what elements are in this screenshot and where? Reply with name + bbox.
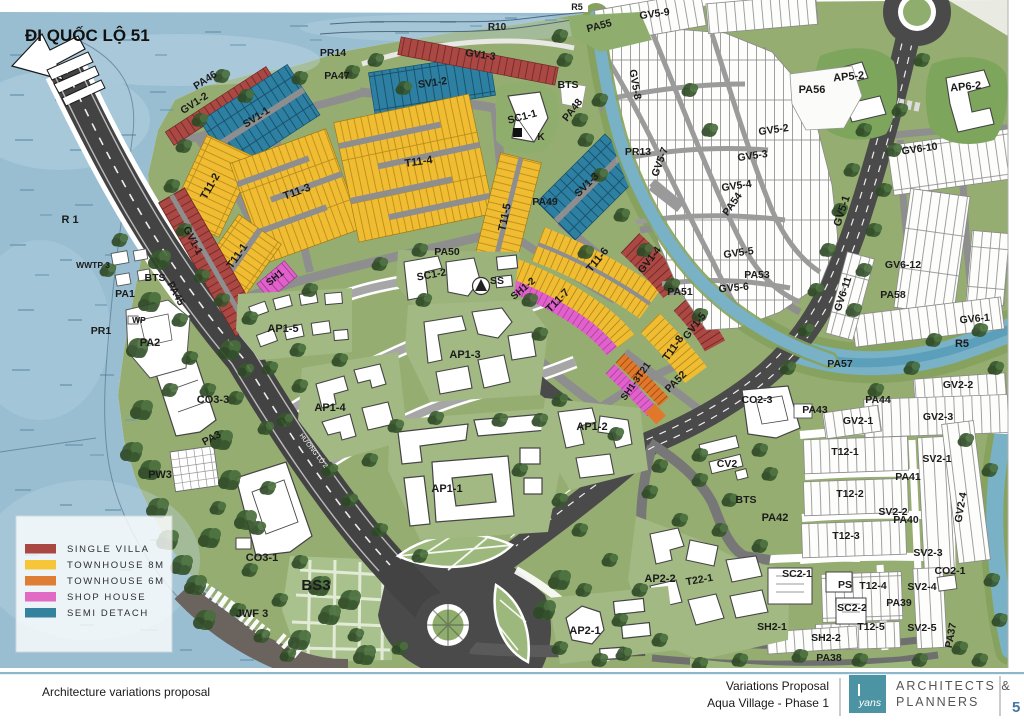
svg-text:PR1: PR1 bbox=[91, 325, 112, 337]
svg-text:GV2-3: GV2-3 bbox=[923, 411, 954, 423]
svg-text:T12-4: T12-4 bbox=[859, 580, 887, 592]
svg-text:PA53: PA53 bbox=[744, 269, 770, 281]
svg-text:BS3: BS3 bbox=[301, 577, 330, 594]
svg-text:PR14: PR14 bbox=[320, 47, 346, 59]
svg-text:R5: R5 bbox=[571, 2, 583, 12]
svg-text:JWF 3: JWF 3 bbox=[236, 608, 268, 620]
svg-text:BTS: BTS bbox=[736, 494, 757, 506]
svg-text:R10: R10 bbox=[488, 22, 507, 33]
svg-text:PR13: PR13 bbox=[625, 146, 651, 158]
svg-text:PW3: PW3 bbox=[148, 469, 172, 481]
svg-text:PLANNERS: PLANNERS bbox=[896, 695, 979, 709]
svg-text:T12-1: T12-1 bbox=[831, 446, 859, 458]
svg-text:R5: R5 bbox=[955, 338, 969, 350]
svg-text:AP2-2: AP2-2 bbox=[644, 573, 675, 585]
svg-text:PS: PS bbox=[838, 579, 852, 591]
svg-text:5: 5 bbox=[1012, 699, 1020, 716]
svg-text:K: K bbox=[537, 132, 545, 143]
svg-text:PA40: PA40 bbox=[893, 514, 919, 526]
svg-text:CO3-3: CO3-3 bbox=[197, 394, 229, 406]
svg-text:SV2-1: SV2-1 bbox=[922, 453, 951, 465]
svg-text:ĐI QUỐC LỘ 51: ĐI QUỐC LỘ 51 bbox=[25, 25, 150, 45]
svg-text:AP1-4: AP1-4 bbox=[314, 402, 346, 414]
svg-text:SV2-5: SV2-5 bbox=[907, 622, 936, 634]
svg-text:BTS: BTS bbox=[145, 272, 166, 284]
svg-text:AP1-1: AP1-1 bbox=[431, 483, 462, 495]
svg-text:SV2-3: SV2-3 bbox=[913, 547, 942, 559]
svg-text:AP1-2: AP1-2 bbox=[576, 421, 607, 433]
svg-text:CO2-1: CO2-1 bbox=[935, 565, 966, 577]
svg-text:GV2-2: GV2-2 bbox=[943, 379, 974, 391]
svg-text:SC2-1: SC2-1 bbox=[782, 568, 812, 580]
svg-text:TOWNHOUSE 6M: TOWNHOUSE 6M bbox=[67, 576, 165, 587]
svg-text:CO3-1: CO3-1 bbox=[246, 552, 278, 564]
svg-text:PA42: PA42 bbox=[762, 512, 789, 524]
svg-text:T12-5: T12-5 bbox=[857, 621, 885, 633]
svg-text:SHOP HOUSE: SHOP HOUSE bbox=[67, 592, 146, 603]
svg-text:ARCHITECTS &: ARCHITECTS & bbox=[896, 679, 1012, 693]
svg-text:PA1: PA1 bbox=[115, 288, 135, 300]
svg-text:AP1-5: AP1-5 bbox=[267, 323, 298, 335]
svg-text:AP2-1: AP2-1 bbox=[569, 625, 600, 637]
svg-text:SS: SS bbox=[490, 275, 504, 287]
svg-text:CV2: CV2 bbox=[717, 458, 738, 470]
svg-text:PA44: PA44 bbox=[865, 394, 891, 406]
svg-text:PA43: PA43 bbox=[802, 404, 828, 416]
svg-text:PA38: PA38 bbox=[816, 652, 842, 664]
svg-text:WP: WP bbox=[132, 315, 146, 325]
svg-text:T12-3: T12-3 bbox=[832, 530, 860, 542]
svg-text:GV6-12: GV6-12 bbox=[885, 259, 921, 271]
svg-text:SINGLE VILLA: SINGLE VILLA bbox=[67, 544, 150, 555]
svg-text:PA49: PA49 bbox=[532, 196, 558, 208]
svg-text:AP1-3: AP1-3 bbox=[449, 349, 480, 361]
svg-text:PA50: PA50 bbox=[434, 246, 460, 258]
svg-text:TOWNHOUSE 8M: TOWNHOUSE 8M bbox=[67, 560, 165, 571]
svg-text:PA58: PA58 bbox=[880, 289, 906, 301]
svg-text:PA51: PA51 bbox=[667, 286, 693, 298]
svg-text:PA56: PA56 bbox=[799, 84, 826, 96]
svg-text:SH2-1: SH2-1 bbox=[757, 621, 787, 633]
svg-text:T12-2: T12-2 bbox=[836, 488, 864, 500]
svg-text:BTS: BTS bbox=[558, 79, 579, 91]
svg-text:Architecture variations propos: Architecture variations proposal bbox=[42, 685, 210, 699]
svg-text:Variations Proposal: Variations Proposal bbox=[726, 679, 829, 693]
svg-text:GV2-1: GV2-1 bbox=[843, 415, 874, 427]
svg-text:Aqua Village - Phase 1: Aqua Village - Phase 1 bbox=[707, 696, 829, 710]
svg-text:PA57: PA57 bbox=[827, 358, 853, 370]
svg-text:PA41: PA41 bbox=[895, 471, 921, 483]
svg-text:CO2-3: CO2-3 bbox=[742, 394, 773, 406]
svg-text:PA39: PA39 bbox=[886, 597, 912, 609]
svg-text:SV2-4: SV2-4 bbox=[907, 581, 936, 593]
svg-text:yans: yans bbox=[858, 697, 882, 709]
svg-text:SC2-2: SC2-2 bbox=[837, 602, 867, 614]
svg-text:WWTP 3: WWTP 3 bbox=[76, 260, 110, 270]
svg-text:PA47: PA47 bbox=[324, 70, 350, 82]
svg-text:SH2-2: SH2-2 bbox=[811, 632, 841, 644]
svg-text:SEMI DETACH: SEMI DETACH bbox=[67, 608, 149, 619]
svg-text:PA2: PA2 bbox=[140, 337, 161, 349]
svg-text:R 1: R 1 bbox=[61, 214, 78, 226]
